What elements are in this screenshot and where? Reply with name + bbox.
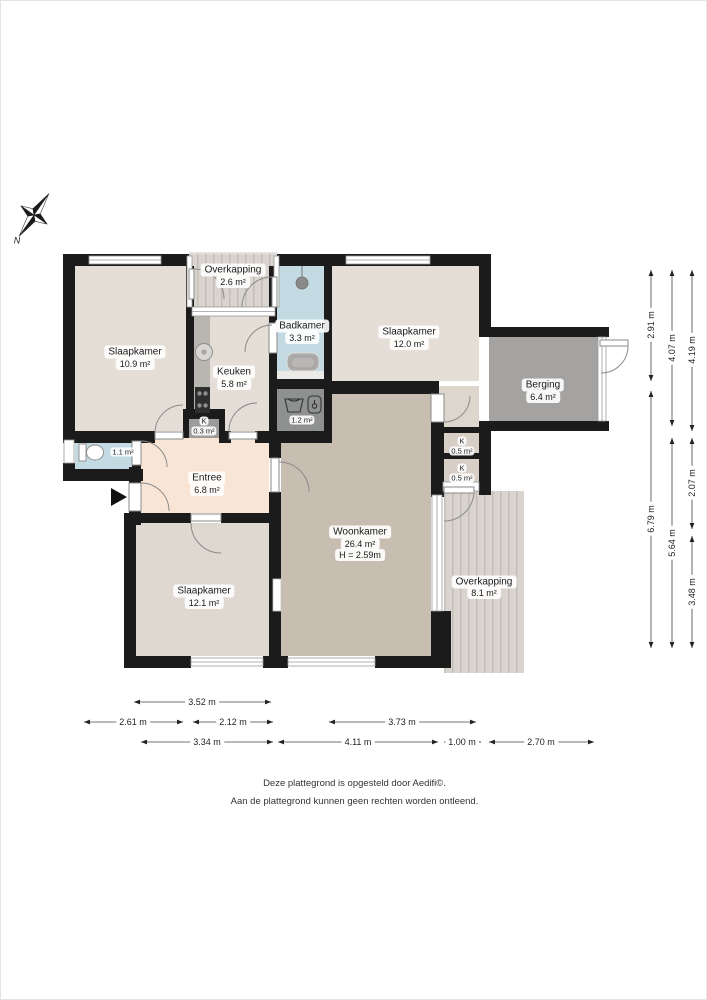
- label-badkamer: Badkamer: [275, 320, 329, 333]
- label-slaapkamer-3: Slaapkamer: [173, 585, 234, 598]
- label-woonkamer: Woonkamer: [329, 526, 391, 539]
- dim-arrowhead: [84, 720, 90, 725]
- label-badkamer-area: 3.3 m²: [285, 332, 319, 344]
- dim-arrowhead: [278, 740, 284, 745]
- label-slaapkamer-1: Slaapkamer: [104, 346, 165, 359]
- dim-4-19: 4.19 m: [687, 333, 697, 367]
- dim-arrowhead: [265, 700, 271, 705]
- dim-3-73: 3.73 m: [385, 717, 419, 727]
- dim-3-34: 3.34 m: [190, 737, 224, 747]
- shower-icon: [296, 266, 308, 289]
- label-kast-05a: K: [457, 437, 466, 446]
- dim-arrowhead: [329, 720, 335, 725]
- plan-structure: [1, 1, 707, 1000]
- dim-2-91: 2.91 m: [646, 308, 656, 342]
- dim-2-70: 2.70 m: [524, 737, 558, 747]
- dim-1-00: 1.00 m: [445, 737, 479, 747]
- laundry-icon: [285, 399, 303, 412]
- label-kast-05b: K: [457, 464, 466, 473]
- label-overkapping-top: Overkapping: [201, 264, 266, 277]
- dim-arrowhead: [690, 523, 695, 529]
- dim-arrowhead: [690, 438, 695, 444]
- label-entree: Entree: [188, 472, 225, 485]
- dim-arrowhead: [670, 270, 675, 276]
- label-slaapkamer-3-area: 12.1 m²: [185, 597, 224, 609]
- dim-4-07: 4.07 m: [667, 331, 677, 365]
- dim-6-79: 6.79 m: [646, 502, 656, 536]
- dim-arrowhead: [267, 740, 273, 745]
- dim-4-11: 4.11 m: [342, 737, 375, 747]
- dim-arrowhead: [649, 642, 654, 648]
- dim-arrowhead: [690, 270, 695, 276]
- label-overkapping-top-area: 2.6 m²: [216, 276, 250, 288]
- dim-arrowhead: [649, 270, 654, 276]
- label-berging-area: 6.4 m²: [526, 391, 560, 403]
- label-wasruimte-area: 1.2 m²: [289, 416, 314, 425]
- dim-arrowhead: [134, 700, 140, 705]
- label-toilet-area: 1.1 m²: [110, 448, 135, 457]
- footer-disclaimer-line: Aan de plattegrond kunnen geen rechten w…: [1, 796, 707, 807]
- dim-2-07: 2.07 m: [687, 466, 697, 500]
- entrance-arrow-icon: [111, 488, 127, 506]
- label-keuken-area: 5.8 m²: [217, 378, 251, 390]
- dim-5-64: 5.64 m: [667, 526, 677, 560]
- label-entree-area: 6.8 m²: [190, 484, 224, 496]
- label-kast-05b-area: 0.5 m²: [449, 474, 474, 483]
- stove-icon: [195, 387, 210, 413]
- dim-3-52: 3.52 m: [185, 697, 219, 707]
- walls-layer: [63, 254, 609, 668]
- label-overkapping-right-area: 8.1 m²: [467, 587, 501, 599]
- dim-arrowhead: [267, 720, 273, 725]
- dim-arrowhead: [670, 420, 675, 426]
- label-kast-05a-area: 0.5 m²: [449, 447, 474, 456]
- dim-arrowhead: [690, 536, 695, 542]
- dim-arrowhead: [588, 740, 594, 745]
- toilet-icon: [79, 444, 104, 461]
- windows-layer: [64, 253, 606, 666]
- dim-arrowhead: [432, 740, 438, 745]
- label-kast-03-area: 0.3 m²: [191, 427, 216, 436]
- dim-arrowhead: [649, 375, 654, 381]
- label-slaapkamer-2: Slaapkamer: [378, 326, 439, 339]
- dim-arrowhead: [489, 740, 495, 745]
- label-kast-03: K: [199, 417, 208, 426]
- floorplan-page: Slaapkamer 10.9 m² Overkapping 2.6 m² Ba…: [0, 0, 707, 1000]
- label-keuken: Keuken: [213, 366, 255, 379]
- dim-arrowhead: [177, 720, 183, 725]
- label-berging: Berging: [522, 379, 564, 392]
- dim-arrowhead: [670, 438, 675, 444]
- dim-arrowhead: [690, 642, 695, 648]
- dim-arrowhead: [649, 391, 654, 397]
- dim-arrowhead: [470, 720, 476, 725]
- compass-north-label: N: [10, 235, 25, 248]
- label-slaapkamer-2-area: 12.0 m²: [390, 338, 429, 350]
- label-woonkamer-height: H = 2.59m: [335, 549, 385, 561]
- boiler-icon: [308, 396, 321, 413]
- footer-credit-line: Deze plattegrond is opgesteld door Aedif…: [1, 778, 707, 789]
- dim-arrowhead: [141, 740, 147, 745]
- dim-arrowhead: [193, 720, 199, 725]
- bathtub-icon: [287, 353, 319, 371]
- sink-icon: [196, 344, 213, 361]
- dim-3-48: 3.48 m: [687, 575, 697, 609]
- label-slaapkamer-1-area: 10.9 m²: [116, 358, 155, 370]
- dim-2-61: 2.61 m: [116, 717, 150, 727]
- dim-arrowhead: [690, 425, 695, 431]
- dim-arrowhead: [670, 642, 675, 648]
- dim-2-12: 2.12 m: [216, 717, 250, 727]
